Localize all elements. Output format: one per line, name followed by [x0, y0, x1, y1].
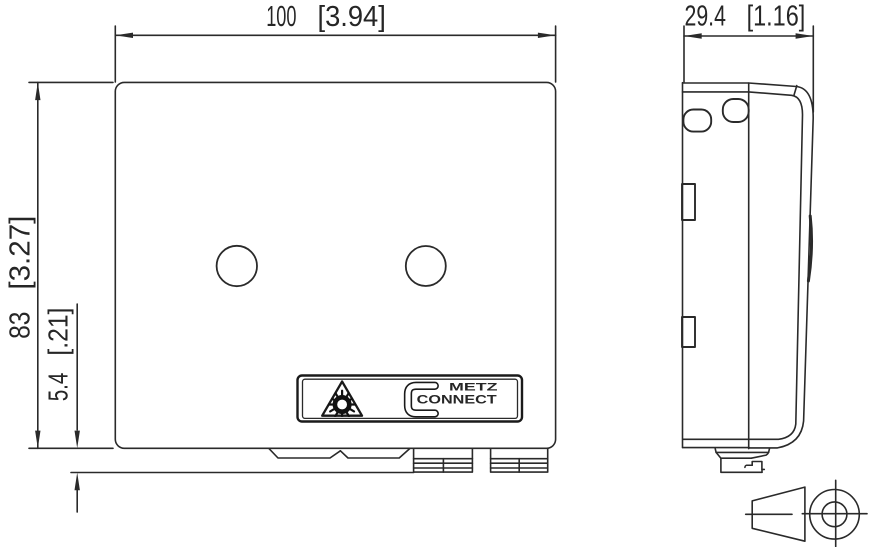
svg-text:5.4: 5.4: [42, 373, 73, 402]
svg-text:29.4: 29.4: [685, 1, 726, 33]
svg-text:CONNECT: CONNECT: [417, 392, 498, 406]
svg-text:100: 100: [266, 1, 296, 33]
svg-text:[.21]: [.21]: [42, 308, 73, 356]
svg-text:83: 83: [5, 312, 37, 339]
svg-text:[3.94]: [3.94]: [318, 1, 386, 33]
svg-text:[3.27]: [3.27]: [5, 216, 37, 290]
svg-text:[1.16]: [1.16]: [747, 1, 806, 33]
